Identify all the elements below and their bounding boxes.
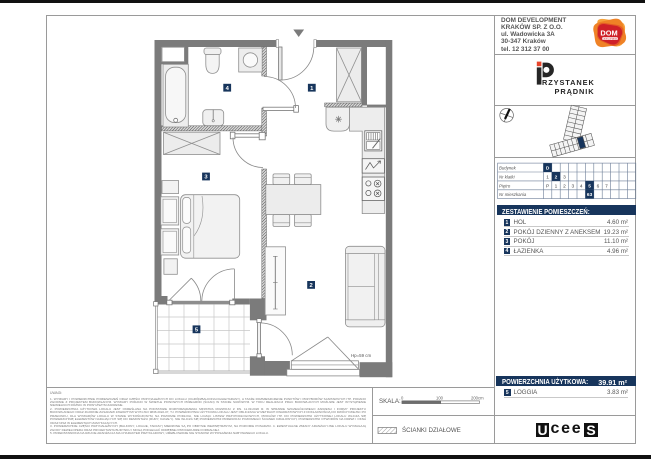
svg-text:2: 2 (309, 283, 312, 289)
svg-text:Hp=59 cm: Hp=59 cm (351, 353, 371, 358)
